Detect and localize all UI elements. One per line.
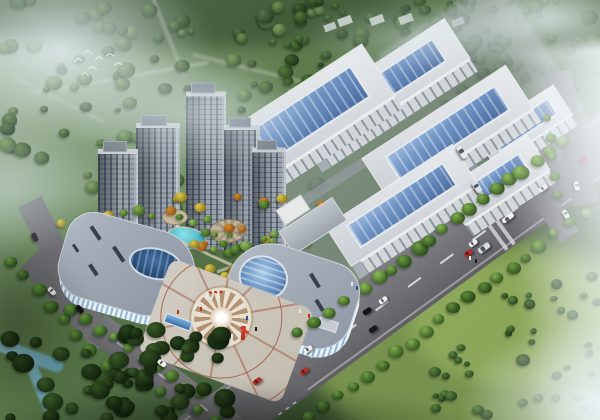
tree: [433, 314, 445, 324]
person: [469, 256, 471, 260]
tree: [256, 9, 273, 24]
tree: [272, 1, 286, 13]
tree: [307, 317, 321, 329]
car-window: [159, 360, 163, 364]
tree: [377, 360, 390, 371]
tree: [189, 219, 198, 227]
tree: [149, 213, 156, 219]
person: [195, 304, 197, 308]
tree: [176, 192, 188, 202]
person: [299, 309, 301, 313]
tree: [224, 223, 234, 232]
tree: [130, 328, 143, 339]
car-window: [458, 148, 464, 154]
fog: [60, 52, 320, 172]
tree: [478, 282, 492, 294]
car-window: [473, 183, 479, 189]
person: [246, 316, 248, 320]
tree: [490, 183, 505, 196]
tree: [449, 351, 458, 359]
tree: [461, 291, 476, 304]
tree: [272, 24, 287, 37]
tree: [457, 344, 466, 352]
tree: [406, 338, 420, 350]
tree: [285, 54, 299, 66]
car-window: [364, 309, 368, 313]
person: [351, 282, 353, 286]
person: [200, 307, 202, 311]
tree: [147, 323, 166, 339]
car-window: [305, 347, 309, 351]
tree: [259, 200, 269, 209]
tree: [323, 308, 336, 319]
tree: [446, 302, 460, 314]
tree: [386, 265, 398, 275]
tree: [109, 352, 129, 369]
tree: [237, 34, 248, 44]
tree: [445, 391, 457, 401]
tree: [388, 345, 403, 358]
tree: [436, 223, 448, 234]
person: [475, 259, 477, 263]
person: [177, 310, 179, 314]
tree: [113, 371, 128, 384]
person: [356, 286, 358, 290]
tree: [285, 42, 292, 48]
tree: [200, 228, 210, 237]
person: [231, 334, 233, 338]
tree: [211, 231, 219, 238]
tree: [211, 352, 224, 363]
tree: [166, 206, 177, 215]
person: [308, 314, 310, 318]
tree: [442, 372, 450, 379]
car-window: [254, 379, 258, 383]
car-window: [470, 241, 474, 245]
tree: [292, 328, 303, 337]
tree: [508, 296, 518, 305]
car-window: [301, 369, 305, 373]
person: [255, 327, 257, 331]
tree: [176, 214, 183, 220]
tree: [165, 370, 179, 382]
car-window: [370, 327, 374, 331]
tree: [128, 368, 139, 377]
tree: [429, 367, 441, 377]
tree: [276, 194, 287, 204]
tree: [477, 194, 490, 205]
aerial-rendering-scene: [0, 0, 600, 420]
tree: [361, 371, 375, 383]
car-window: [480, 246, 486, 252]
tree: [194, 203, 206, 213]
car-window: [380, 298, 384, 302]
tree: [219, 240, 228, 247]
